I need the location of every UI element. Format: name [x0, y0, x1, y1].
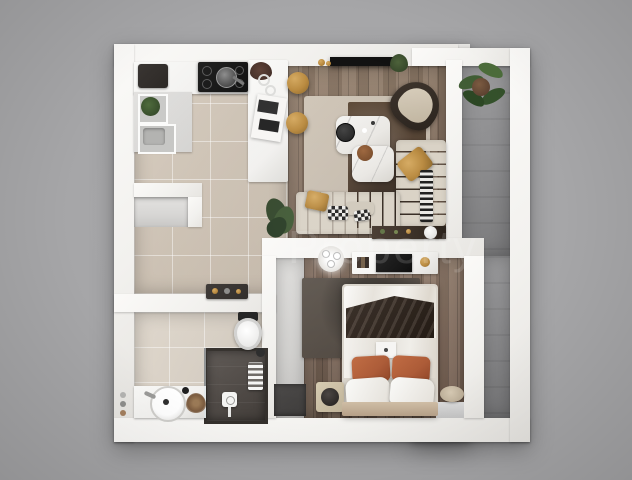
wall-niche-top [134, 183, 202, 197]
tv-plant [390, 54, 408, 72]
cooktop-burner [202, 66, 212, 76]
bedroom-pouf [440, 386, 464, 402]
wall-left [114, 44, 134, 442]
console-tray [424, 226, 437, 239]
bedroom-ceiling-light [318, 246, 344, 272]
bar-stool [286, 112, 308, 134]
bed-headboard [342, 402, 438, 416]
entry-niche-floor [134, 197, 188, 227]
toiletries [120, 392, 126, 398]
bench-decor [212, 288, 218, 294]
cup [265, 85, 276, 96]
towel-radiator [248, 362, 263, 390]
leather-pouf [357, 145, 373, 161]
toiletries [120, 410, 126, 416]
kitchen-plant [141, 97, 160, 116]
light-bulb [327, 260, 335, 268]
coffee-machine [138, 64, 168, 88]
plant-pot [472, 78, 490, 96]
cooktop-burner [202, 79, 212, 89]
console-books [357, 257, 369, 268]
light-bulb [322, 250, 330, 258]
console-vase [420, 257, 430, 267]
table-decor [371, 121, 375, 125]
bedroom-tv [376, 254, 412, 272]
side-table-black [336, 123, 355, 142]
shower-head-face [226, 396, 235, 405]
console-plantlet [380, 229, 385, 234]
tv-wall-unit [330, 57, 394, 66]
doormat [274, 384, 306, 416]
light-bulb [333, 252, 341, 260]
wall-niche-right [188, 197, 202, 227]
dried-flowers [186, 393, 206, 413]
sink-drain [163, 399, 169, 405]
soap-dispenser [182, 387, 189, 394]
console-plantlet [394, 230, 398, 234]
tv-shelf-decor [326, 61, 331, 66]
toilet-brush [256, 348, 265, 357]
bedroom-window-sill [436, 402, 464, 418]
nightstand-speaker [321, 388, 339, 406]
sofa-pillow-checkered [353, 209, 370, 222]
tv-shelf-decor [318, 59, 325, 66]
sink-basin [143, 128, 165, 145]
blanket-tag-dot [384, 348, 388, 352]
wall-bottom [114, 418, 530, 442]
bench-decor [224, 288, 230, 294]
wall-right-outer [510, 48, 530, 442]
bench-decor [236, 289, 241, 294]
sofa-pillow-checkered [328, 206, 348, 220]
shower-pipe [228, 407, 231, 417]
table-decor [362, 128, 367, 133]
striped-throw [420, 170, 433, 222]
wall-kitchen-bathroom [114, 294, 276, 312]
toiletries [120, 401, 126, 407]
balcony-palm-plant [456, 60, 508, 114]
wall-bedroom-balcony [464, 256, 484, 418]
floor-plan-render: Property [0, 0, 632, 480]
floor-plant [264, 196, 296, 240]
console-decor [406, 229, 411, 234]
balcony-floor-lower [484, 256, 510, 418]
bar-stool [287, 72, 309, 94]
